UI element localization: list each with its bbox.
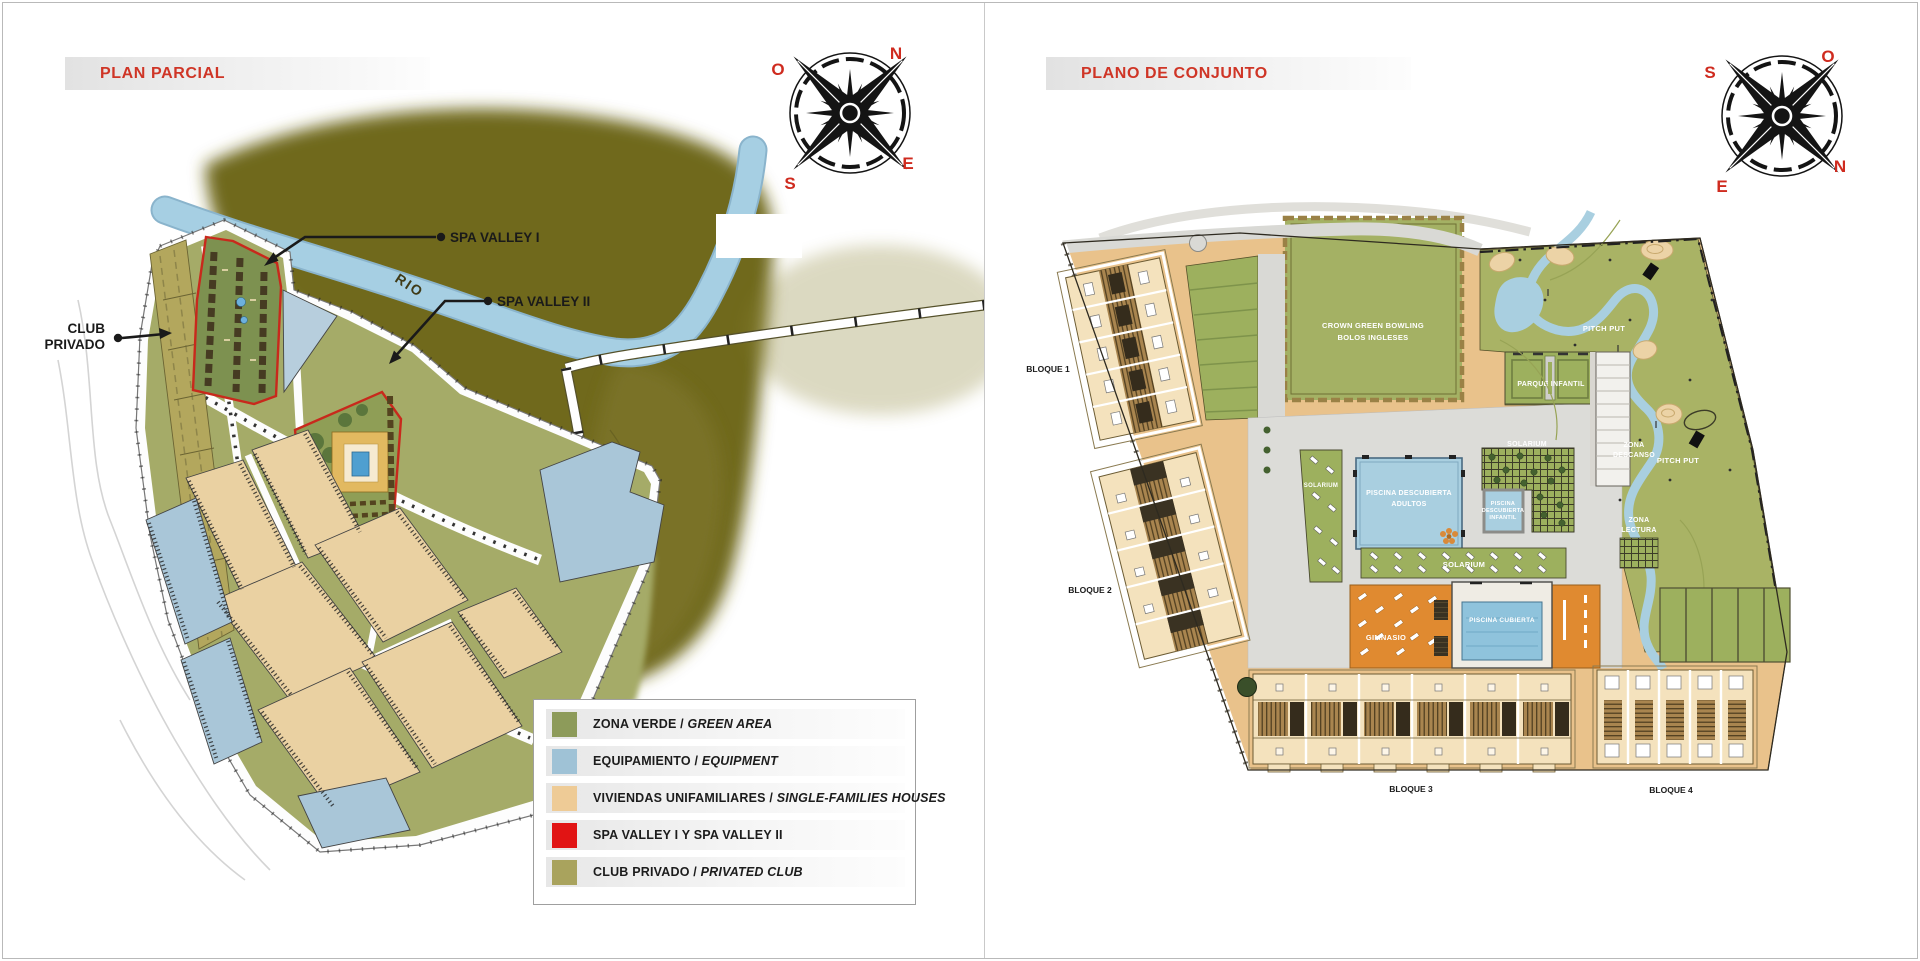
legend-label-english: SINGLE-FAMILIES HOUSES	[777, 791, 946, 805]
legend-swatch-viviendas	[552, 786, 577, 811]
garden-courts	[1660, 588, 1790, 662]
compass-letter-e: E	[902, 154, 913, 173]
pitch-put-label-1: PITCH PUT	[1583, 324, 1625, 333]
callout-dot	[437, 233, 445, 241]
bowling-label-line2: BOLOS INGLESES	[1338, 333, 1409, 342]
piscina-infantil-label-line1: PISCINA	[1491, 501, 1515, 507]
bloque-2-label: BLOQUE 2	[1068, 585, 1112, 595]
piscina-cubierta-label: PISCINA CUBIERTA	[1469, 617, 1535, 624]
legend-item-viviendas: VIVIENDAS UNIFAMILIARES / SINGLE-FAMILIE…	[546, 783, 905, 813]
legend-label: EQUIPAMIENTO /	[593, 754, 702, 768]
legend-label: CLUB PRIVADO /	[593, 865, 701, 879]
compass-letter-n: N	[890, 44, 902, 63]
piscina-adultos-label-line2: ADULTOS	[1391, 501, 1426, 508]
zona-descanso-label-line2: DESCANSO	[1613, 452, 1655, 459]
compass-letter-o: O	[771, 60, 784, 79]
piscina-infantil-label-line2: DESCUBIERTA	[1482, 508, 1525, 514]
solarium-label-left: SOLARIUM	[1304, 483, 1338, 489]
legend-label: SPA VALLEY I Y SPA VALLEY II	[593, 828, 783, 842]
compass-letter-s: S	[1704, 63, 1715, 82]
compass-rose-right: S O E N	[1704, 47, 1846, 196]
legend-swatch-club-privado	[552, 860, 577, 885]
solarium-strip: SOLARIUM	[1361, 548, 1566, 578]
legend-swatch-zona-verde	[552, 712, 577, 737]
piscina-adultos-label-line1: PISCINA DESCUBIERTA	[1366, 490, 1452, 497]
gimnasio-label: GIMNASIO	[1366, 633, 1406, 642]
legend: ZONA VERDE / GREEN AREA EQUIPAMIENTO / E…	[533, 699, 916, 905]
vertical-road	[1258, 254, 1285, 420]
compass-letter-o: O	[1821, 47, 1834, 66]
compass-letter-n: N	[1834, 157, 1846, 176]
left-page-title: PLAN PARCIAL	[100, 65, 225, 83]
plano-conjunto-map: CROWN GREEN BOWLING BOLOS INGLESES PARQU…	[985, 0, 1920, 961]
legend-label-english: GREEN AREA	[688, 717, 773, 731]
panel-divider	[984, 3, 985, 958]
legend-label: ZONA VERDE /	[593, 717, 688, 731]
legend-item-zona-verde: ZONA VERDE / GREEN AREA	[546, 709, 905, 739]
legend-item-spa-valley: SPA VALLEY I Y SPA VALLEY II	[546, 820, 905, 850]
gym-area: GIMNASIO PISCINA CUBIERTA	[1350, 582, 1600, 668]
compass-letter-s: S	[784, 174, 795, 193]
piscina-infantil: PISCINA DESCUBIERTA INFANTIL	[1482, 490, 1525, 532]
zona-lectura-label-line1: ZONA	[1628, 517, 1649, 524]
spa-valley-1-label: SPA VALLEY I	[450, 230, 540, 245]
bloque-1-label: BLOQUE 1	[1026, 364, 1070, 374]
right-page-title: PLANO DE CONJUNTO	[1081, 65, 1268, 83]
club-privado-label-line2: PRIVADO	[44, 337, 105, 352]
legend-item-equipamiento: EQUIPAMIENTO / EQUIPMENT	[546, 746, 905, 776]
legend-label-english: EQUIPMENT	[702, 754, 778, 768]
bloque-3-block	[1249, 670, 1575, 772]
club-privado-label-line1: CLUB	[68, 321, 106, 336]
bowling-green: CROWN GREEN BOWLING BOLOS INGLESES	[1285, 218, 1462, 400]
compass-rose-left: O N S E	[771, 44, 914, 193]
bloque-3-label: BLOQUE 3	[1389, 784, 1433, 794]
river-blank-label-box	[716, 214, 802, 258]
spa-valley-2-label: SPA VALLEY II	[497, 294, 590, 309]
bloque-4-label: BLOQUE 4	[1649, 785, 1693, 795]
legend-swatch-equipamiento	[552, 749, 577, 774]
solarium-label-strip: SOLARIUM	[1443, 560, 1485, 569]
zona-lectura-label-line2: LECTURA	[1621, 527, 1657, 534]
right-title-bar: PLANO DE CONJUNTO	[1046, 57, 1411, 90]
pitch-put-label-2: PITCH PUT	[1657, 456, 1699, 465]
callout-dot	[484, 297, 492, 305]
callout-dot	[114, 334, 122, 342]
trellis-grid	[1620, 538, 1658, 568]
cul-de-sac	[1190, 235, 1207, 252]
bowling-label-line1: CROWN GREEN BOWLING	[1322, 321, 1424, 330]
indoor-pool-building: PISCINA CUBIERTA	[1452, 582, 1552, 668]
compass-letter-e: E	[1716, 177, 1727, 196]
legend-item-club-privado: CLUB PRIVADO / PRIVATED CLUB	[546, 857, 905, 887]
bloque-4-block	[1593, 666, 1757, 768]
piscina-infantil-label-line3: INFANTIL	[1489, 515, 1516, 521]
legend-label-english: PRIVATED CLUB	[701, 865, 803, 879]
zona-descanso-label-line1: ZONA	[1623, 442, 1644, 449]
parque-infantil-label: PARQUE INFANTIL	[1517, 381, 1585, 388]
legend-label: VIVIENDAS UNIFAMILIARES /	[593, 791, 777, 805]
solarium-label-top: SOLARIUM	[1507, 441, 1547, 448]
left-title-bar: PLAN PARCIAL	[65, 57, 430, 90]
legend-swatch-spa-valley	[552, 823, 577, 848]
